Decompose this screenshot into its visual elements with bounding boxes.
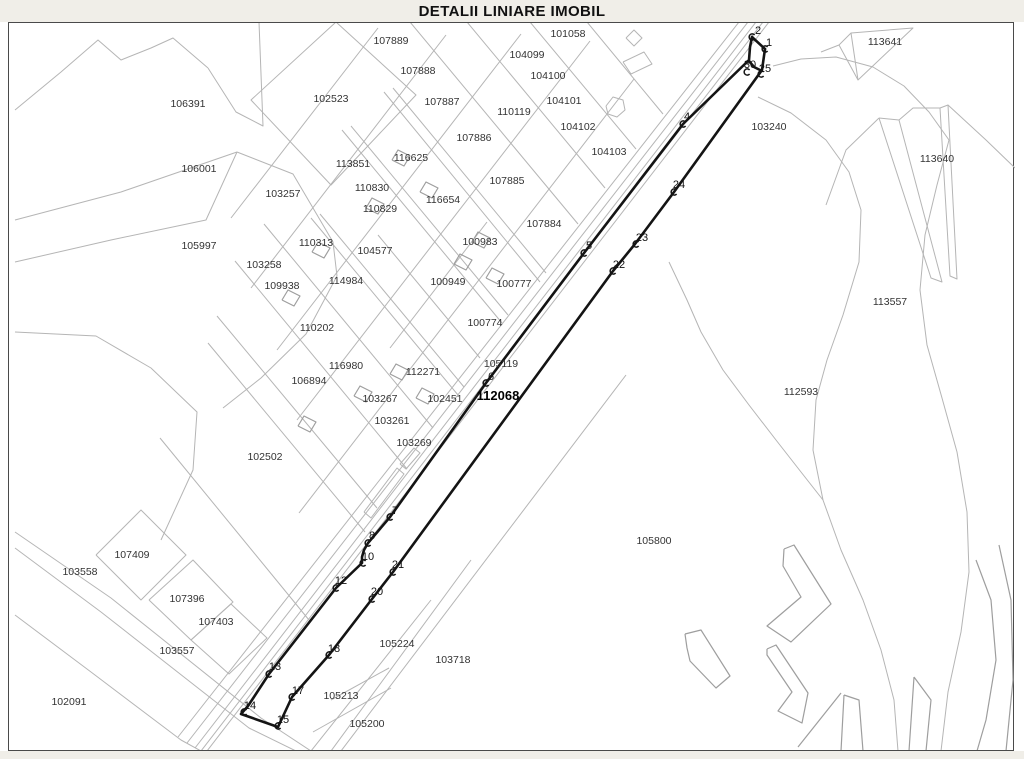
parcel-label: 102091 [51,696,86,708]
point-label: 1 [766,37,772,49]
parcel-label: 103258 [246,259,281,271]
parcel-label: 110202 [300,322,334,334]
parcel-label: 110830 [355,182,389,194]
point-label: 18 [328,643,340,655]
parcel-label: 100949 [430,276,465,288]
parcel-label: 107888 [400,65,435,77]
point-label: 14 [244,700,256,712]
parcel-label: 116980 [329,360,363,372]
parcel-label: 102502 [247,451,282,463]
parcel-boundary-line [208,23,263,126]
building-outline [685,630,730,688]
parcel-label: 101058 [550,28,585,40]
parcel-boundary-line [378,235,480,358]
parcel-boundary-line [217,316,377,508]
point-label: 12 [335,575,347,587]
point-label: 22 [613,259,625,271]
parcel-boundary-line [384,92,540,282]
parcel-label: 110313 [299,237,333,249]
parcel-label: 103267 [362,393,397,405]
point-label: 13 [269,661,281,673]
parcel-boundary-line [773,57,949,140]
title-bar: DETALII LINIARE IMOBIL [0,0,1024,22]
parcel-boundary-line [669,262,823,500]
parcel-label: 103261 [374,415,409,427]
detail-page: DETALII LINIARE IMOBIL 10639110600110599… [0,0,1024,759]
parcel-label: 104099 [509,49,544,61]
building-outline [767,545,831,642]
parcel-label: 104103 [591,146,626,158]
parcel-label: 113640 [920,153,954,165]
parcel-label: 102523 [313,93,348,105]
point-label: 23 [636,232,648,244]
parcel-label: 103718 [435,654,470,666]
parcel-label: 116625 [394,152,428,164]
point-label: 6 [488,371,494,383]
point-label: 24 [673,179,685,191]
parcel-label: 103557 [159,645,194,657]
page-title: DETALII LINIARE IMOBIL [419,3,606,20]
map-frame: 1063911060011059971025231078891078881078… [8,22,1014,751]
parcel-label: 106001 [181,163,216,175]
parcel-label: 105200 [349,718,384,730]
parcel-label: 107886 [456,132,491,144]
parcel-label: 116654 [426,194,460,206]
parcel-label: 103269 [396,437,431,449]
building-outline [767,645,808,723]
parcel-boundary-line [15,332,197,540]
point-label: 20 [371,586,383,598]
parcel-label: 100983 [462,236,497,248]
point-label: 15 [277,714,289,726]
parcel-label: 105997 [181,240,216,252]
building-outline [976,560,996,750]
point-label: 21 [392,559,404,571]
point-label: 10 [362,551,374,563]
parcel-label: 106894 [291,375,326,387]
building-outline [841,695,863,750]
parcel-label: 112593 [784,386,818,398]
building-outline [282,290,300,306]
parcel-label: 114984 [329,275,363,287]
parcel-label: 110119 [497,106,531,118]
parcel-boundary-line [758,97,898,750]
bottom-margin [0,751,1024,759]
point-label: 4 [684,111,690,123]
parcel-label: 113557 [873,296,907,308]
parcel-boundary-line [948,105,1015,168]
parcel-label: 112271 [406,366,440,378]
parcel-label: 107403 [198,616,233,628]
parcel-label: 105213 [323,690,358,702]
parcel-label: 102451 [427,393,462,405]
parcel-label: 107884 [526,218,561,230]
point-label: 8 [369,530,375,542]
subject-parcel-label: 112068 [477,388,520,403]
parcel-label: 107889 [373,35,408,47]
parcel-boundary-line [626,30,642,46]
parcel-label: 104102 [560,121,595,133]
point-label: 7 [392,505,398,517]
parcel-label: 104100 [530,70,565,82]
parcel-boundary-line [191,604,267,674]
point-label: 2 [755,25,761,37]
parcel-label: 104101 [546,95,581,107]
point-label: 17 [292,685,304,697]
building-outline [798,693,841,747]
parcel-label: 103257 [265,188,300,200]
parcel-boundary-line [879,118,942,282]
parcel-boundary-line [920,140,969,750]
parcel-label: 103240 [751,121,786,133]
parcel-label: 105119 [484,358,518,370]
parcel-label: 100774 [467,317,502,329]
parcel-boundary-line [187,23,748,743]
point-label: 25 [759,63,771,75]
parcel-boundary-line [606,97,625,117]
parcel-label: 100777 [496,278,531,290]
parcel-boundary-line [826,118,879,205]
parcel-label: 110829 [363,203,397,215]
parcel-label: 107409 [114,549,149,561]
parcel-label: 106391 [170,98,205,110]
parcel-label: 107396 [169,593,204,605]
parcel-label: 105800 [636,535,671,547]
parcel-boundary-line [15,615,201,750]
parcel-boundary-line [341,375,626,750]
building-outline [999,545,1013,750]
parcel-label: 107885 [489,175,524,187]
point-label: 30 [744,59,756,71]
building-outline [909,677,931,750]
parcel-label: 113641 [868,36,902,48]
cadastral-map: 1063911060011059971025231078891078881078… [9,23,1015,750]
point-label: 5 [586,240,592,252]
parcel-label: 105224 [379,638,414,650]
parcel-boundary-line [587,23,663,114]
parcel-label: 103558 [62,566,97,578]
parcel-label: 104577 [357,245,392,257]
parcel-label: 109938 [264,280,299,292]
parcel-boundary-line [299,79,634,513]
parcel-boundary-line [277,34,521,350]
parcel-label: 107887 [424,96,459,108]
subject-parcel-boundary [278,49,765,727]
parcel-boundary-line [400,448,420,469]
parcel-label: 113851 [336,158,370,170]
